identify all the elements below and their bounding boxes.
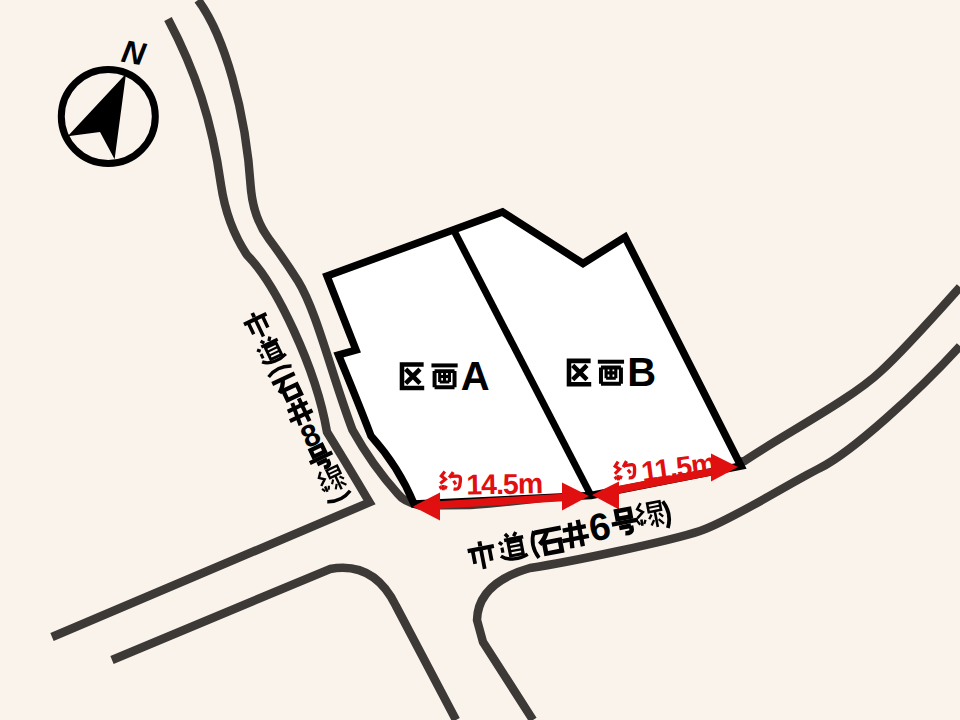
svg-text:A: A (461, 354, 490, 398)
svg-text:14.5m: 14.5m (466, 467, 542, 500)
svg-text:B: B (627, 350, 656, 394)
